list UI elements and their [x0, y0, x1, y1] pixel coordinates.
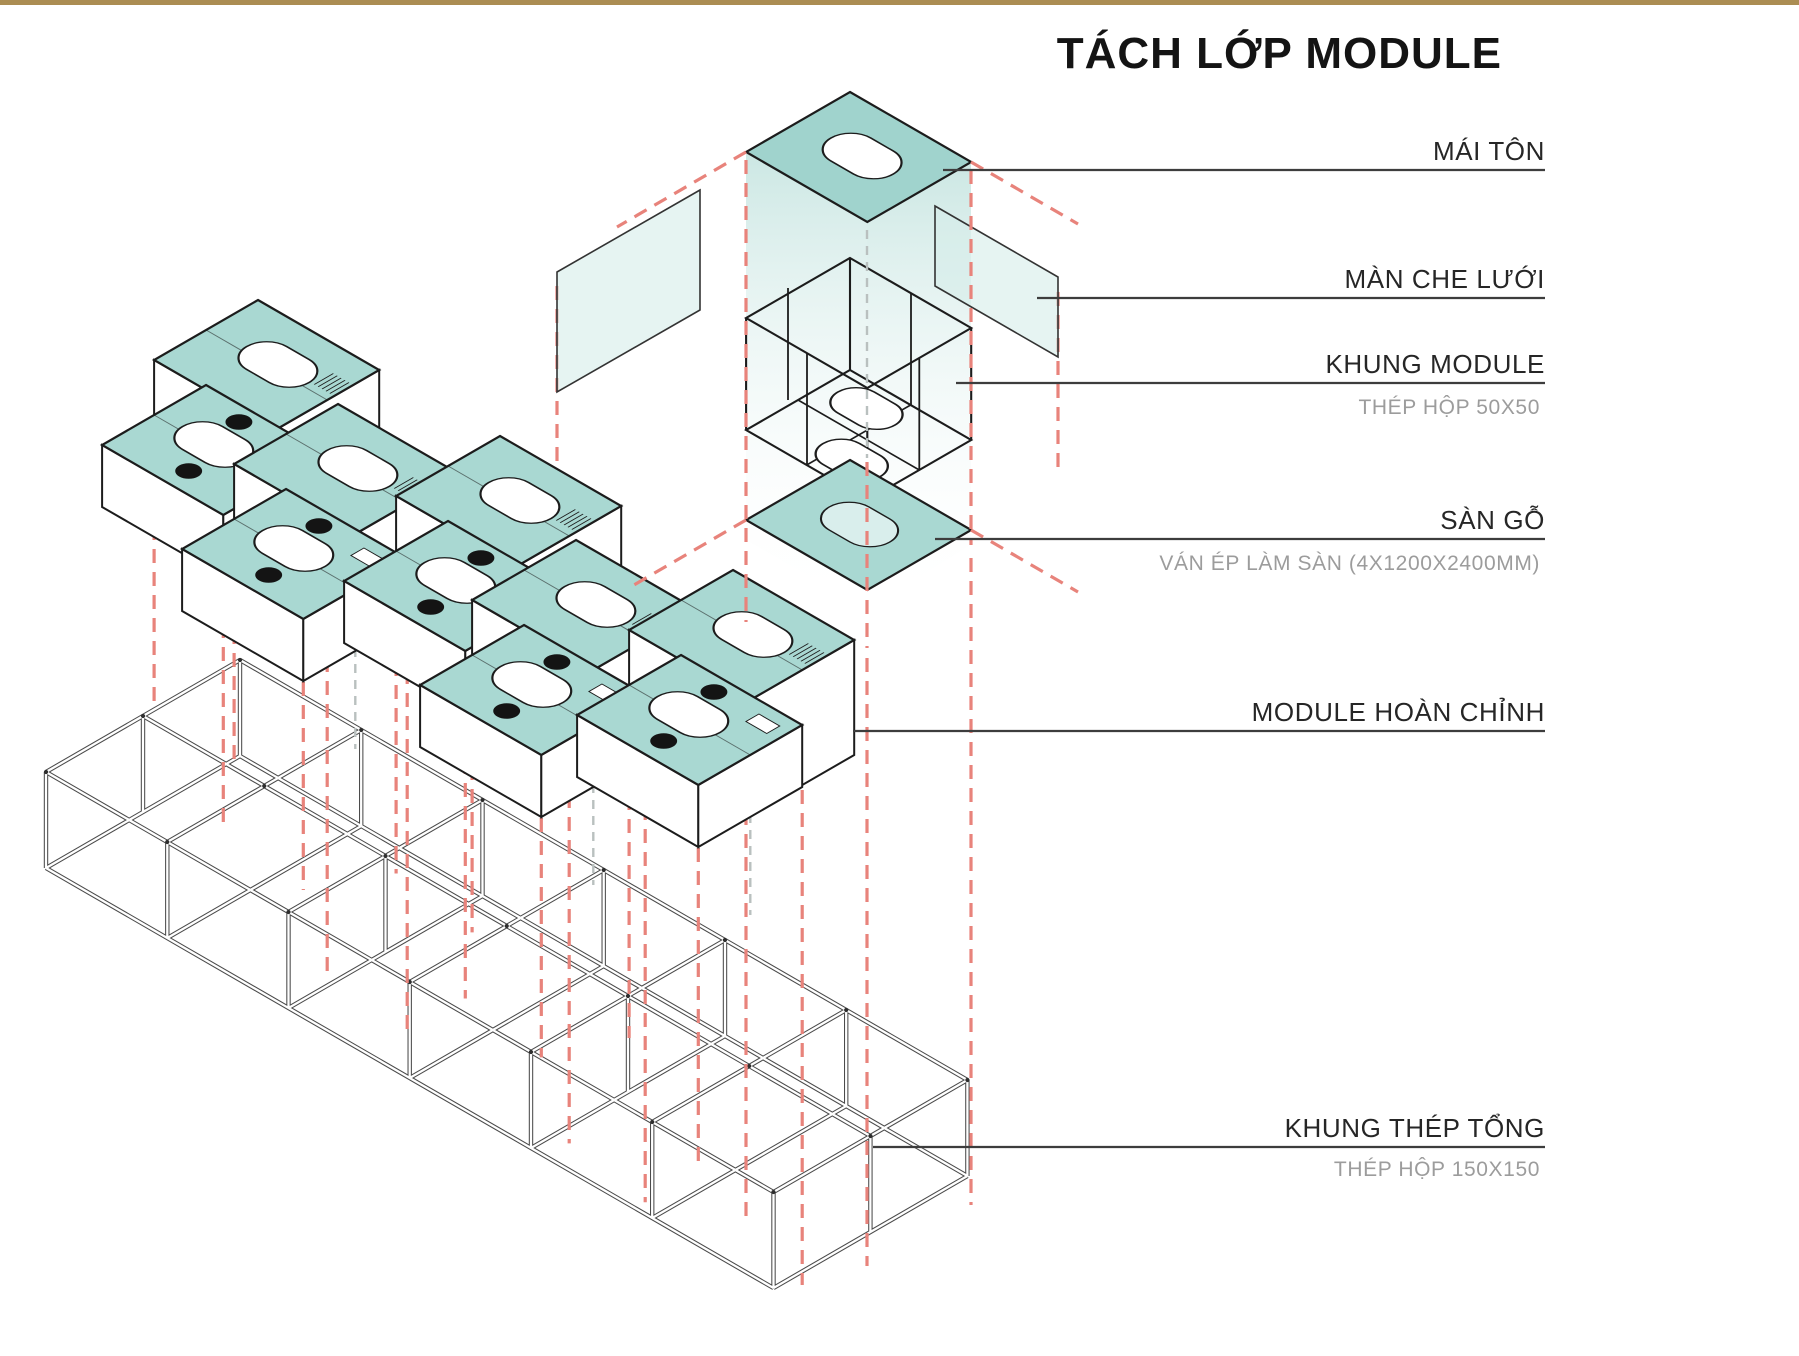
annotation-khung-thep-tong: KHUNG THÉP TỔNG: [1285, 1113, 1545, 1143]
exploded-axonometric-diagram: MÁI TÔN MÀN CHE LƯỚI KHUNG MODULE THÉP H…: [0, 0, 1799, 1356]
top-accent-bar: [0, 0, 1799, 5]
complete-modules-row: [102, 300, 854, 847]
mesh-screen-left: [557, 190, 700, 392]
annotation-module-hoan-chinh: MODULE HOÀN CHỈNH: [1252, 697, 1545, 727]
annotation-mai-ton: MÁI TÔN: [1433, 136, 1545, 166]
annotation-sub-san-go: VÁN ÉP LÀM SÀN (4X1200X2400MM): [1159, 552, 1540, 575]
annotation-sub-khung-thep-tong: THÉP HỘP 150X150: [1334, 1158, 1540, 1181]
exploded-module-stack: [557, 92, 1078, 648]
annotation-khung-module: KHUNG MODULE: [1325, 349, 1545, 379]
diagram-page: MÁI TÔN MÀN CHE LƯỚI KHUNG MODULE THÉP H…: [0, 0, 1799, 1356]
page-title: TÁCH LỚP MODULE: [1057, 28, 1502, 78]
annotation-san-go: SÀN GỖ: [1440, 505, 1545, 535]
annotation-sub-khung-module: THÉP HỘP 50X50: [1358, 396, 1540, 419]
annotation-man-che-luoi: MÀN CHE LƯỚI: [1345, 264, 1546, 294]
